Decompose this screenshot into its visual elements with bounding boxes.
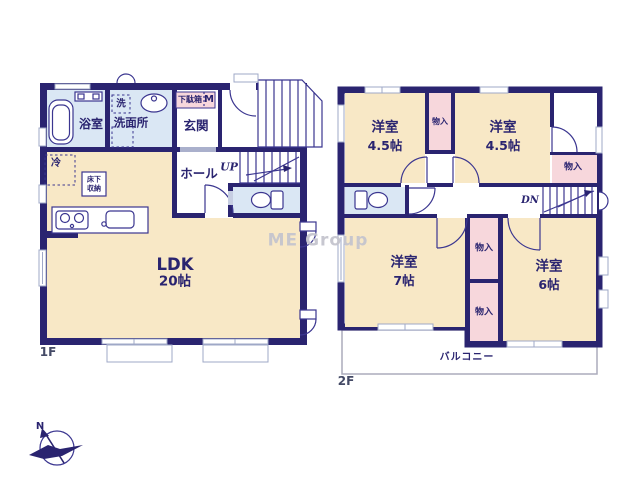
top-wall-door-arc bbox=[117, 74, 135, 83]
label-closet-top: 物入 bbox=[432, 118, 448, 126]
floorplan-canvas: 浴室 洗 洗面所 下駄箱 M 玄関 ホール UP 冷 床下 収納 LDK 20帖… bbox=[0, 0, 640, 480]
sink-icon bbox=[141, 94, 167, 112]
label-stairs-down: DN bbox=[521, 196, 539, 206]
label-floor2: 2F bbox=[338, 375, 355, 387]
stair-side-door-arc bbox=[599, 192, 608, 210]
label-room-nw: 洋室 bbox=[372, 121, 399, 135]
toilet-door-mark bbox=[228, 191, 233, 205]
label-fridge: 冷 bbox=[51, 159, 61, 169]
entrance-step bbox=[180, 147, 216, 152]
label-ldk-size: 20帖 bbox=[159, 275, 191, 289]
terrace-step-1 bbox=[107, 345, 172, 362]
label-room-se-size: 6帖 bbox=[538, 279, 559, 292]
label-hall: ホール bbox=[180, 168, 218, 181]
front-door-leaf bbox=[234, 74, 258, 82]
right-door-2-leaf bbox=[300, 310, 316, 319]
label-closet-mid-2: 物入 bbox=[475, 309, 493, 318]
label-floor-storage-1: 床下 bbox=[87, 177, 101, 184]
label-washroom: 洗面所 bbox=[114, 117, 149, 129]
label-floor-storage-2: 収納 bbox=[87, 186, 101, 193]
entrance-vestibule bbox=[222, 90, 258, 147]
kitchen-counter bbox=[52, 207, 148, 233]
label-balcony: バルコニー bbox=[440, 353, 495, 363]
toilet-1f-icon bbox=[252, 191, 284, 209]
label-washer: 洗 bbox=[116, 99, 126, 109]
bathtub-icon bbox=[49, 100, 73, 144]
label-north: N bbox=[36, 422, 44, 432]
label-closet-mid-1: 物入 bbox=[475, 245, 493, 254]
staircase-upper-1f bbox=[258, 78, 322, 149]
label-entrance: 玄関 bbox=[183, 120, 208, 133]
label-room-ne: 洋室 bbox=[490, 121, 517, 135]
bath-counter bbox=[75, 92, 102, 101]
compass-rose bbox=[29, 428, 83, 465]
label-stairs-up: UP bbox=[220, 162, 238, 173]
front-door-gap bbox=[230, 82, 256, 91]
compass-needle bbox=[29, 445, 83, 459]
label-floor1: 1F bbox=[40, 346, 57, 358]
label-room-sw: 洋室 bbox=[391, 256, 418, 270]
label-ldk: LDK bbox=[157, 257, 194, 274]
label-room-ne-size: 4.5帖 bbox=[486, 140, 521, 153]
shutter-bump-2 bbox=[599, 290, 608, 308]
watermark-text: ME Group bbox=[268, 233, 369, 250]
label-closet-east: 物入 bbox=[564, 164, 582, 173]
label-meter: M bbox=[204, 95, 214, 105]
label-room-nw-size: 4.5帖 bbox=[368, 140, 403, 153]
label-room-sw-size: 7帖 bbox=[393, 275, 414, 288]
shutter-bump-1 bbox=[599, 257, 608, 275]
terrace-step-2 bbox=[203, 345, 268, 362]
label-bathroom: 浴室 bbox=[79, 118, 103, 130]
label-shoe-cabinet: 下駄箱 bbox=[178, 96, 202, 104]
label-room-se: 洋室 bbox=[536, 260, 563, 274]
